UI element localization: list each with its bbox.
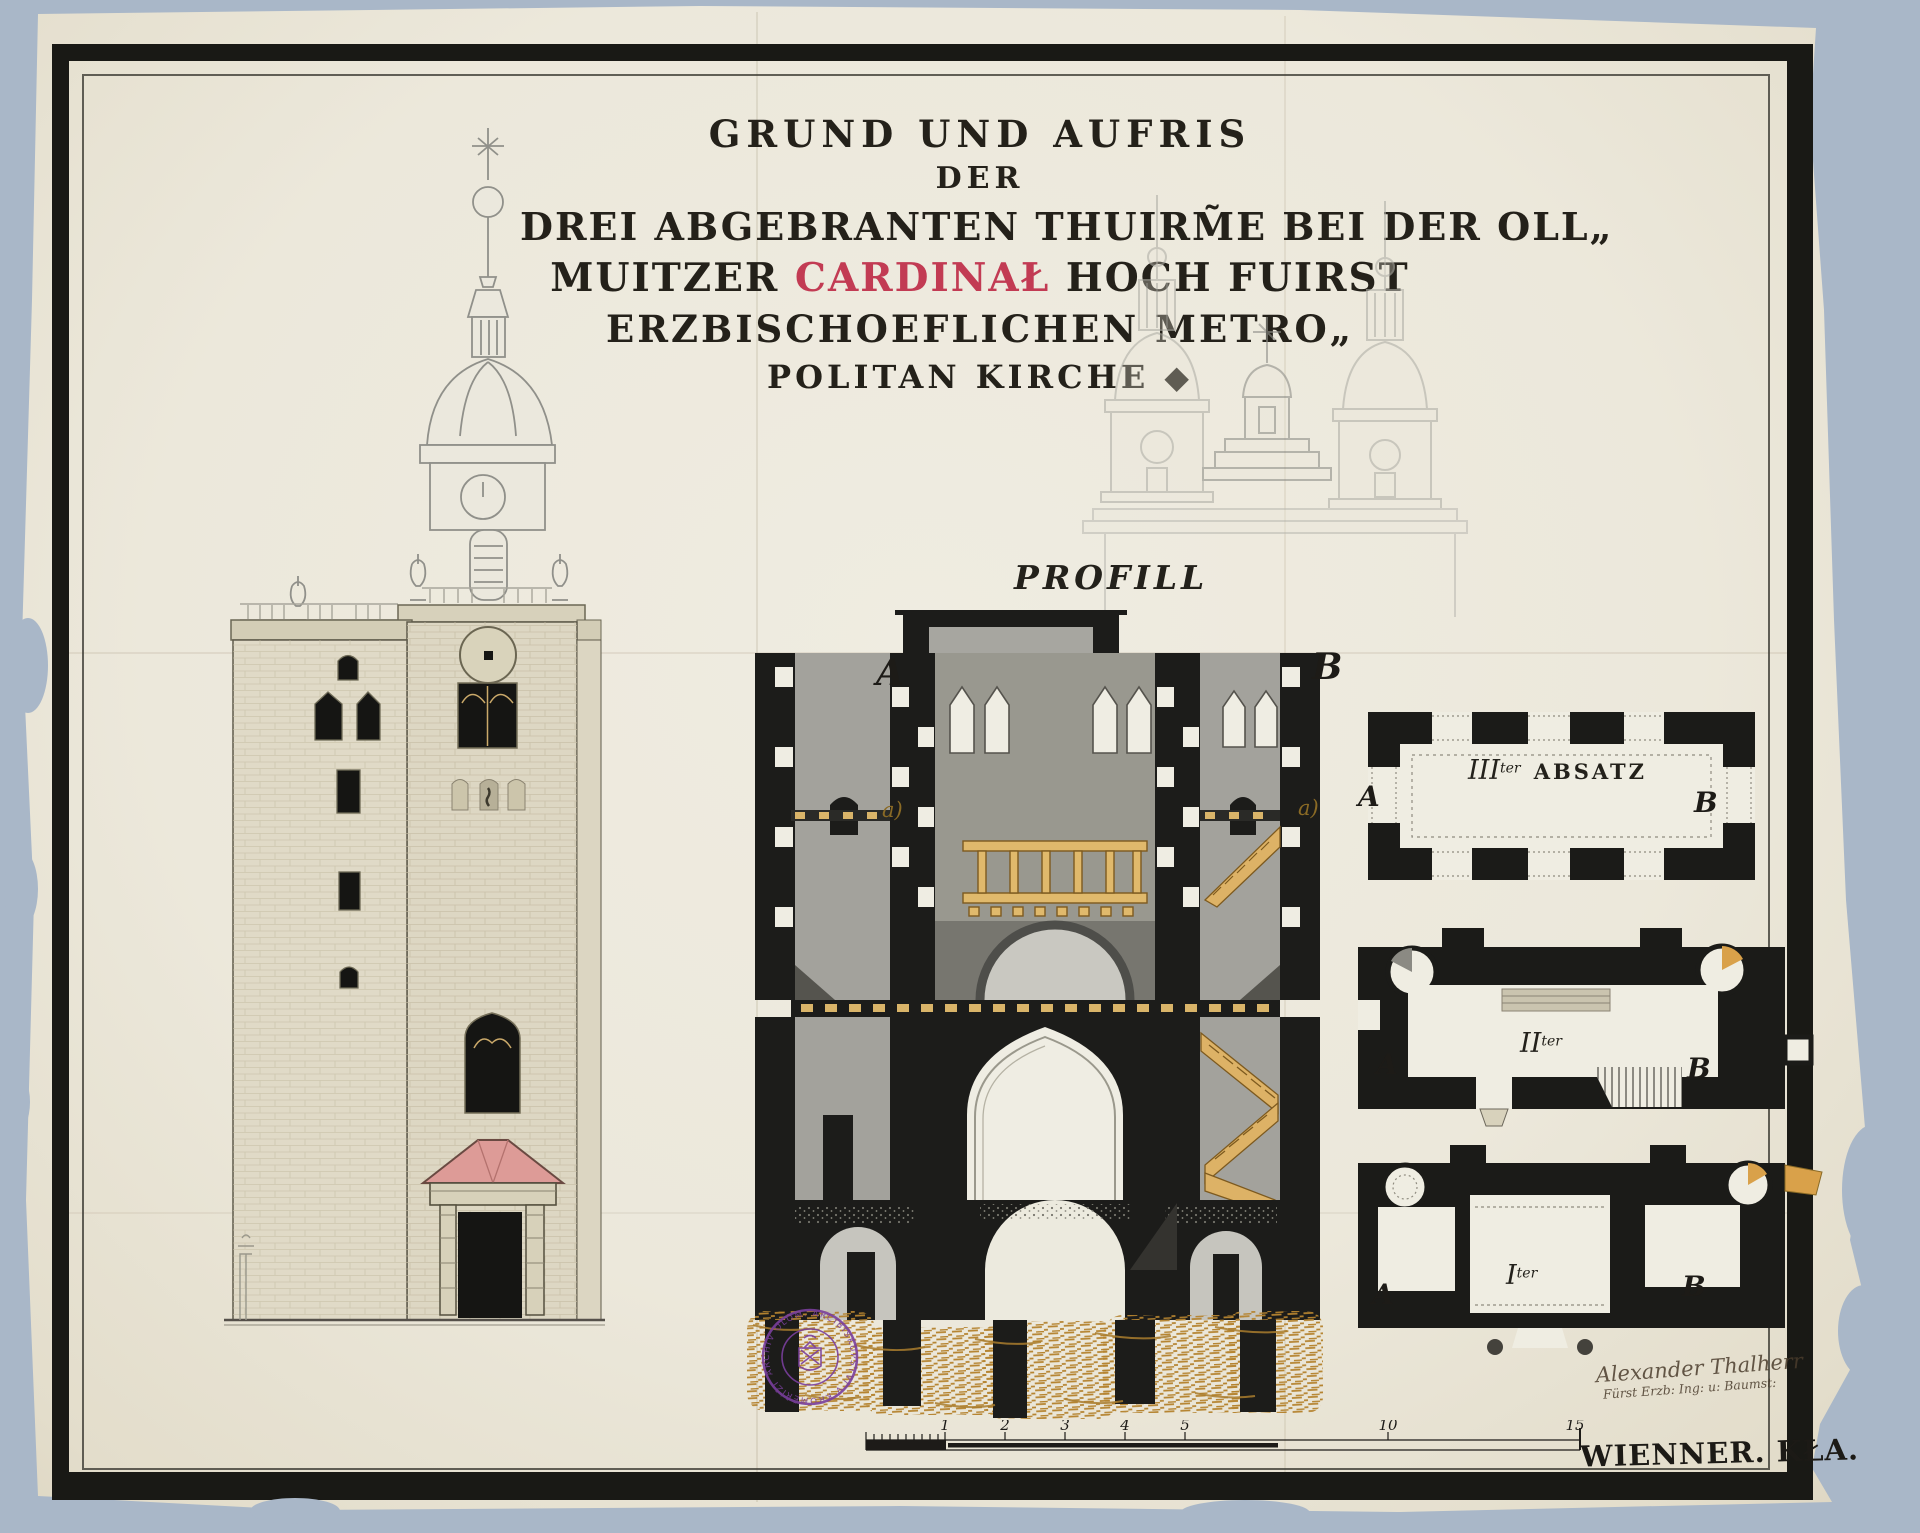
plan-side-wedge xyxy=(1785,1165,1822,1195)
plan-second-label: IIter xyxy=(1520,1028,1562,1059)
pencil-spire xyxy=(240,128,568,620)
scale-tick-1: 1 xyxy=(940,1420,950,1434)
paper-tear-right-2 xyxy=(1838,1285,1890,1377)
statue-niches xyxy=(452,780,525,811)
paper-tear-left-1 xyxy=(8,618,48,713)
plan-second-marker-a: A xyxy=(1376,1048,1398,1081)
plan-first-marker-b: B xyxy=(1682,1270,1706,1303)
entrance-portal xyxy=(423,1140,563,1318)
floor-dentil-band xyxy=(791,1000,1280,1017)
plan-first-label: Iter xyxy=(1506,1260,1537,1291)
plan-first-marker-a: A xyxy=(1372,1278,1394,1311)
ghost-cupola-center xyxy=(1203,317,1331,480)
plan-second-floor xyxy=(1358,928,1811,1126)
scale-tick-4: 4 xyxy=(1119,1420,1130,1434)
plan-first-sup: ter xyxy=(1517,1266,1538,1282)
section-middle-zone xyxy=(755,1017,1320,1215)
plan-third-marker-b: B xyxy=(1694,786,1718,819)
plan-third-label: IIIter ABSATZ xyxy=(1468,755,1647,786)
column-base xyxy=(1487,1339,1503,1355)
scanned-architectural-drawing: { "colors": { "background": "#a9b7c8", "… xyxy=(0,0,1920,1533)
portal-doorway xyxy=(458,1212,522,1318)
section-small-mark-right: a) xyxy=(1298,796,1319,820)
turret-left xyxy=(1383,1165,1427,1209)
profile-label: PROFILL xyxy=(1014,558,1208,597)
portal-column-left xyxy=(440,1205,456,1315)
paper-tear-bottom-1 xyxy=(250,1498,340,1524)
paper-tear-right-1 xyxy=(1842,1125,1902,1255)
lower-gothic-window xyxy=(465,1013,520,1113)
paper-tear-bottom-2 xyxy=(1180,1500,1310,1526)
title-line-4-cardinal-red: CARDINAŁ xyxy=(795,255,1050,301)
stamp-crest xyxy=(799,1336,821,1371)
section-small-mark-left: a) xyxy=(882,798,903,822)
paper-tear-right-3 xyxy=(1852,1395,1898,1465)
column-base xyxy=(1577,1339,1593,1355)
scale-caption: WIENNER. KŁA. xyxy=(1580,1432,1860,1473)
ghost-tower-left xyxy=(1101,195,1213,502)
scale-bar: 1 2 3 4 5 10 15 xyxy=(858,1420,1598,1478)
paper-tear-left-3 xyxy=(0,1070,30,1134)
portal-column-right xyxy=(526,1205,544,1315)
paper-tear-left-2 xyxy=(4,850,38,928)
plan-first-roman: I xyxy=(1506,1260,1517,1291)
scale-tick-15: 15 xyxy=(1565,1420,1584,1434)
stone-facade xyxy=(231,605,601,1320)
platform xyxy=(1502,989,1610,1011)
section-marker-a: A xyxy=(876,652,904,694)
section-top-parapet xyxy=(895,610,1127,653)
plan-second-marker-b: B xyxy=(1687,1052,1711,1085)
round-arch xyxy=(935,921,1155,1000)
plan-second-roman: II xyxy=(1520,1028,1541,1059)
plan-second-sup: ter xyxy=(1541,1034,1562,1050)
scale-tick-3: 3 xyxy=(1060,1420,1070,1434)
archive-stamp: ARCHIV OLOM. ARCIBISKUPSTVÍ V KROMĚŘÍŽI … xyxy=(755,1302,865,1412)
section-marker-b: B xyxy=(1312,646,1342,688)
plan-third-sup: ter xyxy=(1500,761,1521,777)
plan-third-roman: III xyxy=(1468,755,1500,786)
tower-elevation-drawing xyxy=(222,118,607,1328)
scale-tick-5: 5 xyxy=(1180,1420,1190,1434)
title-line-1: GRUND UND AUFRIS xyxy=(520,112,1440,156)
scale-tick-10: 10 xyxy=(1378,1420,1398,1434)
side-door-left xyxy=(823,1115,853,1200)
ghost-tower-right xyxy=(1329,201,1441,509)
scale-numbers: 1 2 3 4 5 10 15 xyxy=(940,1420,1584,1434)
floor-plans xyxy=(1350,695,1850,1365)
plan-first-floor xyxy=(1358,1145,1822,1355)
plan-third-marker-a: A xyxy=(1358,780,1380,813)
plan-third-name: ABSATZ xyxy=(1534,759,1647,784)
scale-tick-2: 2 xyxy=(999,1420,1010,1434)
plan-side-tab xyxy=(1785,1037,1811,1063)
